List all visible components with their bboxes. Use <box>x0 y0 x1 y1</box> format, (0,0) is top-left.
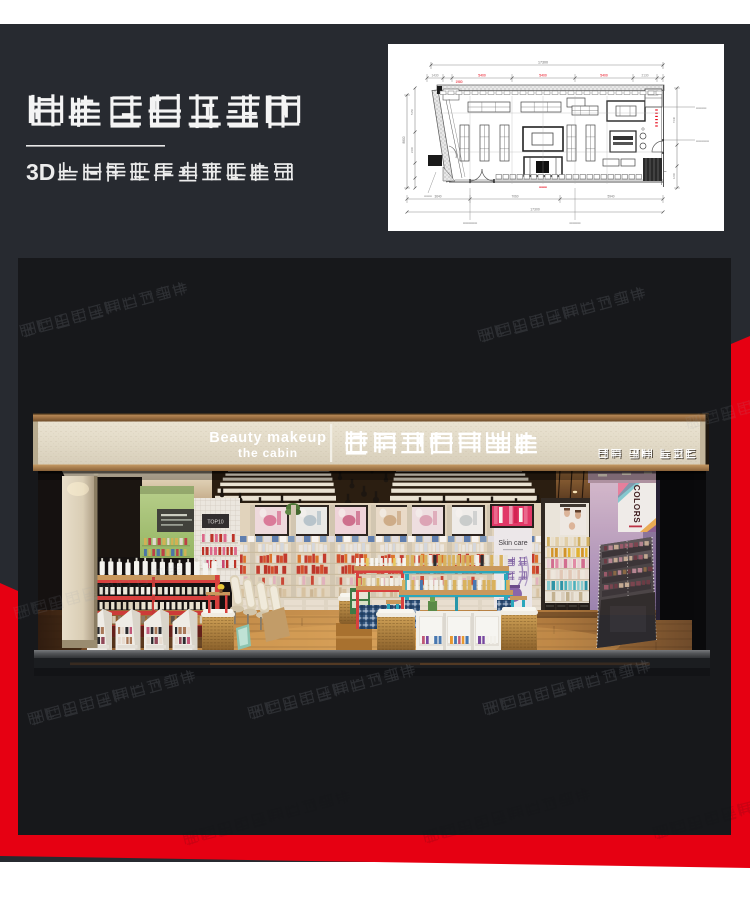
svg-text:▬▬▬▬: ▬▬▬▬ <box>696 107 707 110</box>
svg-text:1430: 1430 <box>431 74 438 78</box>
svg-text:5940: 5940 <box>607 195 614 199</box>
svg-text:17300: 17300 <box>538 61 548 65</box>
svg-text:5400: 5400 <box>539 74 547 78</box>
svg-text:2130: 2130 <box>641 74 648 78</box>
svg-text:Beauty makeup: Beauty makeup <box>209 430 327 446</box>
svg-text:1200: 1200 <box>672 172 676 179</box>
svg-text:5150: 5150 <box>410 108 414 115</box>
svg-text:▬▬▬: ▬▬▬ <box>539 186 547 189</box>
svg-text:17300: 17300 <box>530 208 540 212</box>
svg-text:3D: 3D <box>26 159 55 185</box>
svg-text:the cabin: the cabin <box>238 446 298 460</box>
svg-text:▬▬▬: ▬▬▬ <box>424 195 432 198</box>
svg-text:7340: 7340 <box>672 116 676 123</box>
svg-text:2400: 2400 <box>410 146 414 153</box>
svg-text:5400: 5400 <box>478 74 486 78</box>
svg-text:1980: 1980 <box>455 80 462 84</box>
svg-text:7060: 7060 <box>511 195 518 199</box>
svg-text:▬▬▬▬▬: ▬▬▬▬▬ <box>696 140 709 143</box>
svg-text:8800: 8800 <box>402 136 406 143</box>
svg-text:▬▬▬▬: ▬▬▬▬ <box>569 221 580 225</box>
svg-text:5400: 5400 <box>600 74 608 78</box>
svg-text:▬▬▬▬▬: ▬▬▬▬▬ <box>463 221 477 225</box>
svg-text:3640: 3640 <box>434 195 441 199</box>
